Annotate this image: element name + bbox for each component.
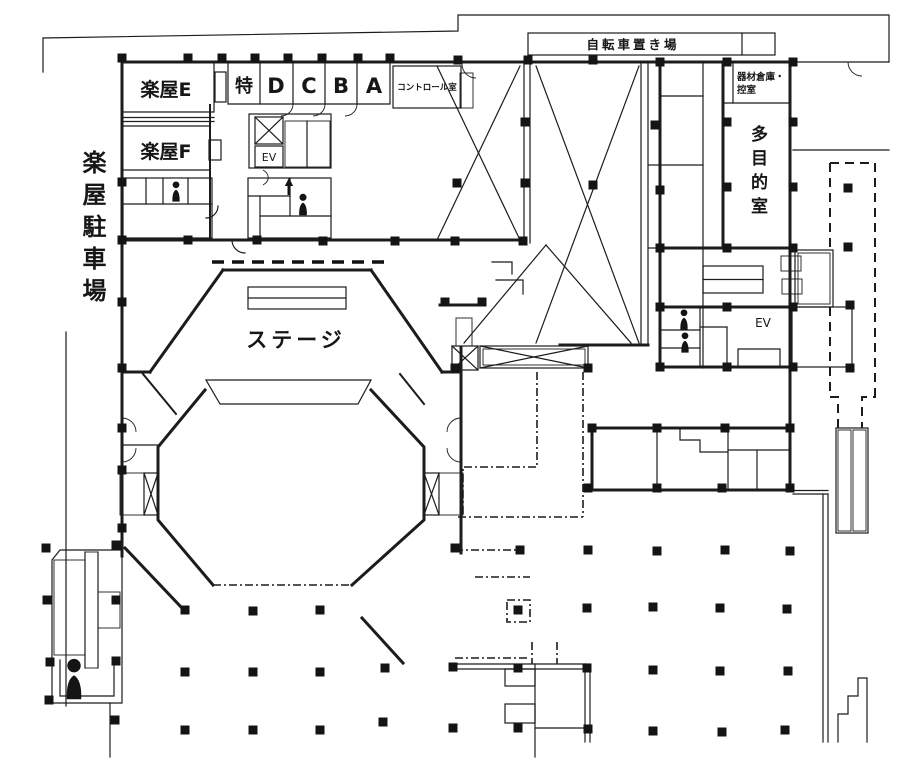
column-square xyxy=(789,183,798,192)
column-square xyxy=(723,244,732,253)
main-walls xyxy=(122,62,889,556)
stairs-east-2 xyxy=(853,430,866,531)
bicycle-parking-area: 自転車置き場 xyxy=(528,33,775,55)
column-square xyxy=(184,54,193,63)
column-square xyxy=(42,544,51,553)
column-square xyxy=(118,236,127,245)
column-square xyxy=(721,424,730,433)
column-square xyxy=(789,303,798,312)
column-square xyxy=(723,183,732,192)
column-square xyxy=(589,181,598,190)
column-square xyxy=(718,728,727,737)
column-square xyxy=(43,596,52,605)
right-wing: 器材倉庫・ 控室 多目的室 EV xyxy=(660,62,862,368)
column-square xyxy=(118,54,127,63)
column-square xyxy=(316,668,325,677)
column-square xyxy=(583,664,592,673)
person-icon xyxy=(67,659,82,699)
column-square xyxy=(844,184,853,193)
column-square xyxy=(653,547,662,556)
elevator-right-label: EV xyxy=(755,316,772,330)
column-square xyxy=(656,363,665,372)
column-square xyxy=(181,606,190,615)
column-square xyxy=(786,547,795,556)
column-square xyxy=(379,718,388,727)
column-square xyxy=(583,604,592,613)
column-square xyxy=(181,726,190,735)
central-hall xyxy=(437,64,660,345)
column-square xyxy=(249,726,258,735)
column-square xyxy=(588,424,597,433)
column-square xyxy=(449,724,458,733)
room-special-label: 特 xyxy=(235,75,253,97)
person-icon xyxy=(299,194,307,215)
backstage-parking-label: 楽屋駐車場 xyxy=(78,149,106,310)
column-square xyxy=(649,727,658,736)
floor-plan-svg: 自転車置き場 楽屋E 楽屋F xyxy=(0,0,904,768)
stairs-hall-small xyxy=(460,73,473,108)
column-square xyxy=(784,667,793,676)
stage-area: ステージ xyxy=(122,262,461,404)
column-square xyxy=(723,58,732,67)
column-square xyxy=(723,363,732,372)
equipment-storage-label-line2: 控室 xyxy=(737,84,757,96)
room-d-label: D xyxy=(267,74,284,98)
column-square xyxy=(584,546,593,555)
column-square xyxy=(118,298,127,307)
stairs-mid-small xyxy=(456,318,472,346)
column-square xyxy=(584,364,593,373)
dressing-rooms-block: 楽屋E 楽屋F xyxy=(122,62,245,253)
multipurpose-room-label: 多目的室 xyxy=(747,124,768,221)
dressing-room-e-label: 楽屋E xyxy=(141,78,192,101)
control-room: コントロール室 xyxy=(393,64,476,108)
column-square xyxy=(723,303,732,312)
stairs-arena-left xyxy=(120,473,144,515)
stage-label: ステージ xyxy=(246,328,346,352)
column-square xyxy=(716,667,725,676)
column-square xyxy=(584,484,593,493)
column-square xyxy=(656,244,665,253)
column-square xyxy=(514,724,523,733)
column-square xyxy=(453,179,462,188)
column-square xyxy=(716,604,725,613)
bicycle-parking-label: 自転車置き場 xyxy=(586,37,679,52)
elevator-stair-block-left: EV xyxy=(248,114,331,238)
column-square xyxy=(118,466,127,475)
column-square xyxy=(441,298,450,307)
column-square xyxy=(454,56,463,65)
column-square xyxy=(184,236,193,245)
column-square xyxy=(789,244,798,253)
column-square xyxy=(656,303,665,312)
up-arrow-icon xyxy=(285,178,293,195)
column-square xyxy=(789,118,798,127)
column-square xyxy=(112,541,121,550)
column-square xyxy=(386,54,395,63)
dashed-outline-region xyxy=(792,163,875,428)
column-square xyxy=(391,237,400,246)
control-room-label: コントロール室 xyxy=(397,82,457,93)
column-square xyxy=(118,424,127,433)
column-square xyxy=(516,546,525,555)
column-square xyxy=(316,606,325,615)
column-square xyxy=(112,596,121,605)
column-square xyxy=(45,696,54,705)
column-square xyxy=(846,364,855,373)
setting-lines xyxy=(455,372,583,664)
stairs-southwest-left xyxy=(54,560,85,655)
column-square xyxy=(521,179,530,188)
column-square xyxy=(789,363,798,372)
person-icon xyxy=(680,309,687,329)
column-square xyxy=(584,725,593,734)
column-square xyxy=(651,121,660,130)
column-square xyxy=(649,603,658,612)
dressing-room-f-label: 楽屋F xyxy=(141,140,192,163)
column-square xyxy=(46,658,55,667)
equipment-storage-label-line1: 器材倉庫・ xyxy=(736,71,785,83)
small-dressing-rooms: 特 D C B A xyxy=(228,62,390,116)
column-square xyxy=(656,186,665,195)
stairs-east xyxy=(838,430,851,531)
column-square xyxy=(786,484,795,493)
room-a-label: A xyxy=(366,74,383,98)
column-square xyxy=(718,484,727,493)
column-square xyxy=(316,726,325,735)
column-square xyxy=(251,54,260,63)
column-square xyxy=(786,424,795,433)
column-square xyxy=(649,666,658,675)
column-square xyxy=(783,605,792,614)
column-square xyxy=(781,726,790,735)
column-square xyxy=(318,54,327,63)
person-icon xyxy=(172,181,179,201)
bottom-small-building xyxy=(452,664,590,757)
column-square xyxy=(381,664,390,673)
column-square xyxy=(451,544,460,553)
column-square xyxy=(789,58,798,67)
stairs-arena-right xyxy=(439,473,463,515)
column-square xyxy=(844,243,853,252)
column-square xyxy=(653,424,662,433)
room-c-label: C xyxy=(301,74,316,98)
column-square xyxy=(451,237,460,246)
column-square xyxy=(218,54,227,63)
column-square xyxy=(589,56,598,65)
column-square xyxy=(253,236,262,245)
column-square xyxy=(249,607,258,616)
elevator-left-label: EV xyxy=(262,151,277,164)
room-b-label: B xyxy=(333,74,349,98)
column-square xyxy=(354,54,363,63)
floor-plan-sheet: 自転車置き場 楽屋E 楽屋F xyxy=(0,0,904,768)
stairs-southwest-mid xyxy=(85,552,98,668)
column-square xyxy=(112,657,121,666)
column-square xyxy=(721,546,730,555)
column-square xyxy=(111,716,120,725)
column-square xyxy=(514,606,523,615)
column-square xyxy=(181,668,190,677)
column-square xyxy=(524,56,533,65)
column-square xyxy=(319,237,328,246)
southwest-staircase xyxy=(52,550,122,703)
column-square xyxy=(118,178,127,187)
column-square xyxy=(118,364,127,373)
column-square xyxy=(653,484,662,493)
bottom-right-block xyxy=(657,428,868,742)
column-square xyxy=(478,298,487,307)
column-square xyxy=(846,301,855,310)
column-square xyxy=(449,663,458,672)
column-square xyxy=(118,524,127,533)
column-square xyxy=(514,664,523,673)
arena-octagon xyxy=(120,374,463,663)
column-square xyxy=(521,118,530,127)
column-square xyxy=(451,364,460,373)
column-square xyxy=(284,54,293,63)
person-icon xyxy=(681,332,688,352)
column-square xyxy=(249,668,258,677)
column-square xyxy=(656,58,665,67)
column-square xyxy=(723,118,732,127)
column-square xyxy=(519,237,528,246)
